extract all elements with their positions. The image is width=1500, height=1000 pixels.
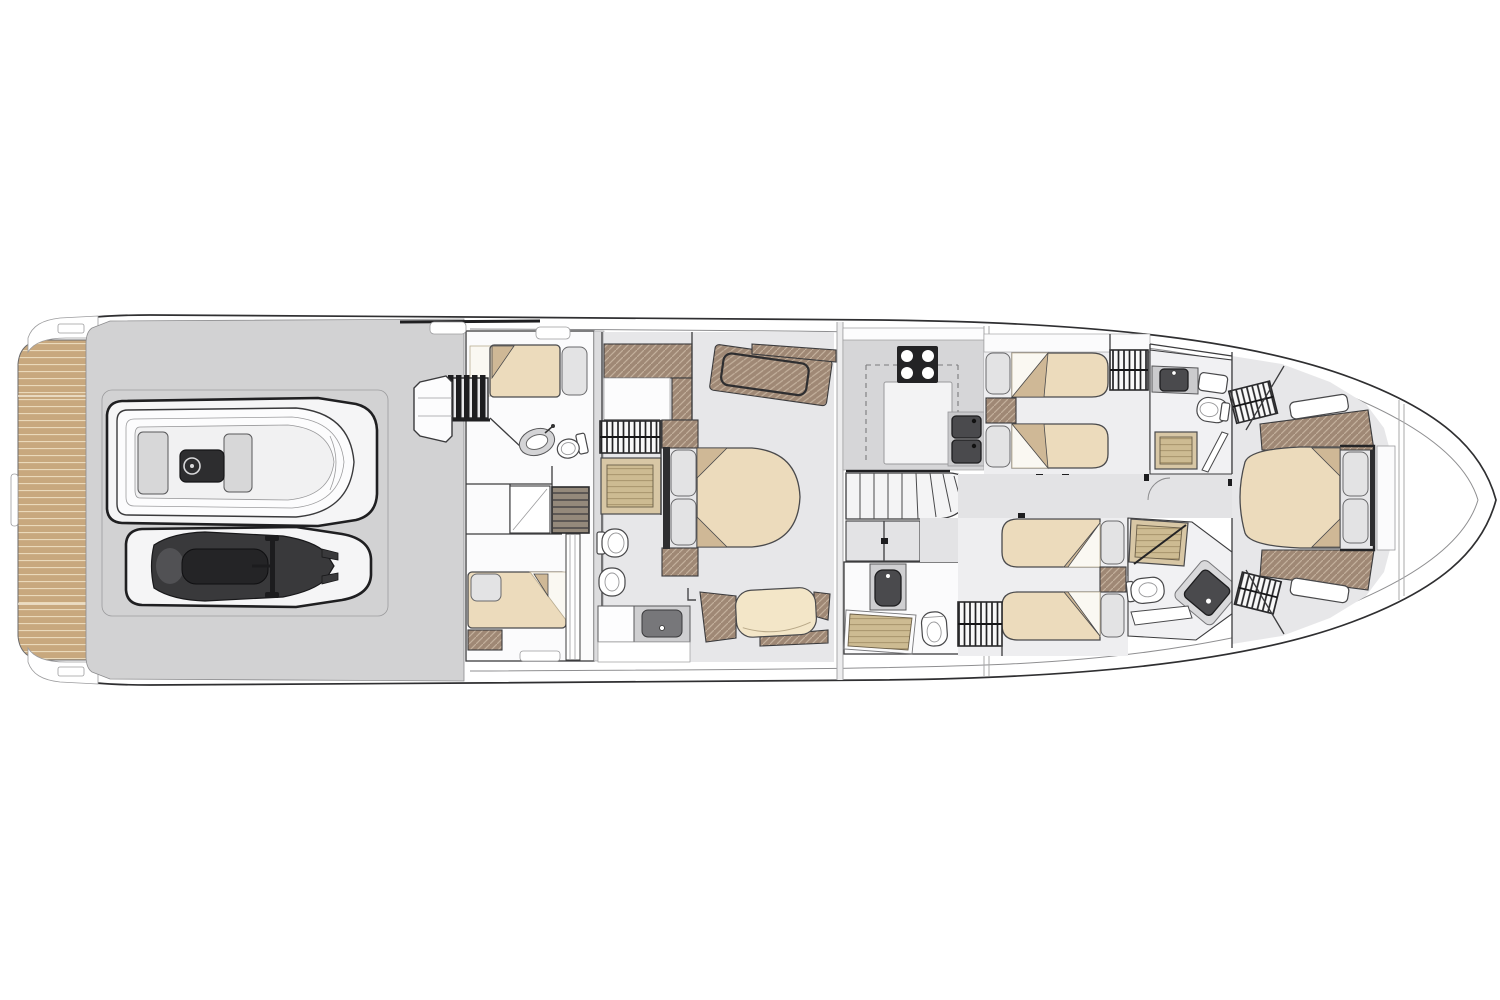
- toilet: [597, 529, 628, 557]
- deck-hatch-lower: [520, 651, 560, 661]
- day-head: [844, 562, 962, 654]
- master-cabinet-side: [672, 378, 692, 420]
- jet-ski-grip-top: [265, 535, 279, 541]
- headboard: [663, 447, 670, 549]
- pillow: [671, 499, 696, 545]
- twin-cabin-port: [958, 518, 1128, 656]
- burner: [901, 350, 913, 362]
- sink-basin: [952, 416, 981, 438]
- berth-shelf: [468, 630, 502, 650]
- ladder-trunk: [566, 534, 580, 660]
- pillow: [1101, 521, 1124, 564]
- master-wardrobe: [600, 421, 660, 453]
- transom-locker-top: [58, 324, 84, 333]
- master-shelf: [604, 378, 670, 420]
- mattress: [1240, 447, 1340, 548]
- pillow: [986, 353, 1010, 394]
- shower-grate: [1160, 437, 1192, 464]
- bidet: [599, 568, 625, 596]
- shower-grate: [848, 614, 912, 650]
- sink-drain: [660, 626, 665, 631]
- deck-plan-page: [0, 0, 1500, 1000]
- galley-cabinets-top: [843, 328, 984, 340]
- faucet: [1172, 371, 1176, 375]
- master-cabin: [597, 322, 843, 680]
- island-counter: [884, 382, 952, 464]
- burner: [901, 367, 913, 379]
- galley: [843, 328, 984, 470]
- deckhouse-aft-edge: [400, 321, 540, 322]
- sink-vanity: [1152, 366, 1198, 394]
- deck-hatch-crew: [536, 327, 570, 339]
- wardrobe: [1110, 350, 1148, 390]
- galley-sinks: [948, 412, 984, 466]
- pillow: [471, 574, 501, 601]
- bathroom-forward-starboard: [1150, 350, 1232, 474]
- deck-hatch-aft: [430, 322, 466, 334]
- single-bed-1: [1002, 519, 1124, 567]
- deck-plan-drawing: [0, 0, 1500, 1000]
- jet-ski-bow: [156, 548, 184, 584]
- pillow: [671, 450, 696, 496]
- sink-basin: [952, 440, 981, 463]
- pillow: [986, 426, 1010, 467]
- shower: [1155, 432, 1197, 469]
- corridor-floor: [958, 474, 1232, 518]
- fwd-bulkhead-fill: [837, 322, 843, 680]
- swim-platform: [11, 316, 98, 684]
- nightstand-top: [662, 420, 698, 448]
- headboard-panel: [1377, 446, 1395, 550]
- tender-console: [180, 450, 224, 482]
- teak-shower: [1129, 519, 1188, 566]
- master-sofa: [700, 587, 830, 646]
- nightstand: [1100, 567, 1126, 592]
- garage-access-landing: [414, 376, 452, 442]
- single-bed-2: [986, 424, 1108, 468]
- nightstand: [986, 398, 1016, 423]
- faucet-knob: [551, 424, 555, 428]
- tender-wheel-hub: [190, 464, 194, 468]
- staircase: [846, 471, 970, 519]
- jet-ski-grip-bottom: [265, 592, 279, 598]
- platform-step: [11, 474, 18, 526]
- burner: [922, 367, 934, 379]
- tender: [117, 408, 354, 517]
- master-cabinet-top: [604, 344, 692, 378]
- shower-grate: [1135, 525, 1182, 560]
- door-hinge: [1018, 513, 1025, 518]
- shower: [601, 458, 661, 514]
- faucet: [972, 444, 976, 448]
- shower-grate: [607, 465, 653, 507]
- wardrobe: [958, 602, 1002, 646]
- burner: [922, 350, 934, 362]
- bath-cabinet-low: [598, 642, 690, 662]
- transom-locker-bottom: [58, 667, 84, 676]
- cooktop: [897, 346, 938, 383]
- jet-ski-handlebar: [270, 540, 275, 593]
- door-hinge: [1144, 474, 1149, 481]
- nightstand-bottom: [662, 548, 698, 576]
- landing: [846, 521, 920, 561]
- toilet: [921, 611, 948, 647]
- stair-outline: [846, 473, 970, 519]
- vanity-cabinet: [598, 606, 634, 642]
- tender-garage: [86, 319, 464, 681]
- tender-seat-fwd: [224, 434, 252, 492]
- faucet: [886, 574, 890, 578]
- corridor-jog: [920, 518, 964, 562]
- sink-vanity: [870, 564, 906, 610]
- door-hinge: [881, 538, 888, 544]
- single-bed-1: [986, 353, 1108, 397]
- headboard: [1370, 450, 1375, 546]
- pillow: [1343, 452, 1368, 496]
- sink-basin: [642, 610, 682, 637]
- sofa-seat: [735, 587, 817, 638]
- pillow: [1343, 499, 1368, 543]
- pillow: [1101, 594, 1124, 637]
- single-bed-2: [1002, 592, 1124, 640]
- sink-vanity: [598, 606, 690, 642]
- sofa-platform-left: [700, 592, 736, 642]
- pillow: [562, 347, 587, 395]
- landing-platform: [414, 376, 452, 442]
- shelf: [1198, 372, 1228, 394]
- tender-seat-aft: [138, 432, 168, 494]
- engine-room-hatch: [552, 487, 589, 533]
- faucet: [972, 419, 976, 423]
